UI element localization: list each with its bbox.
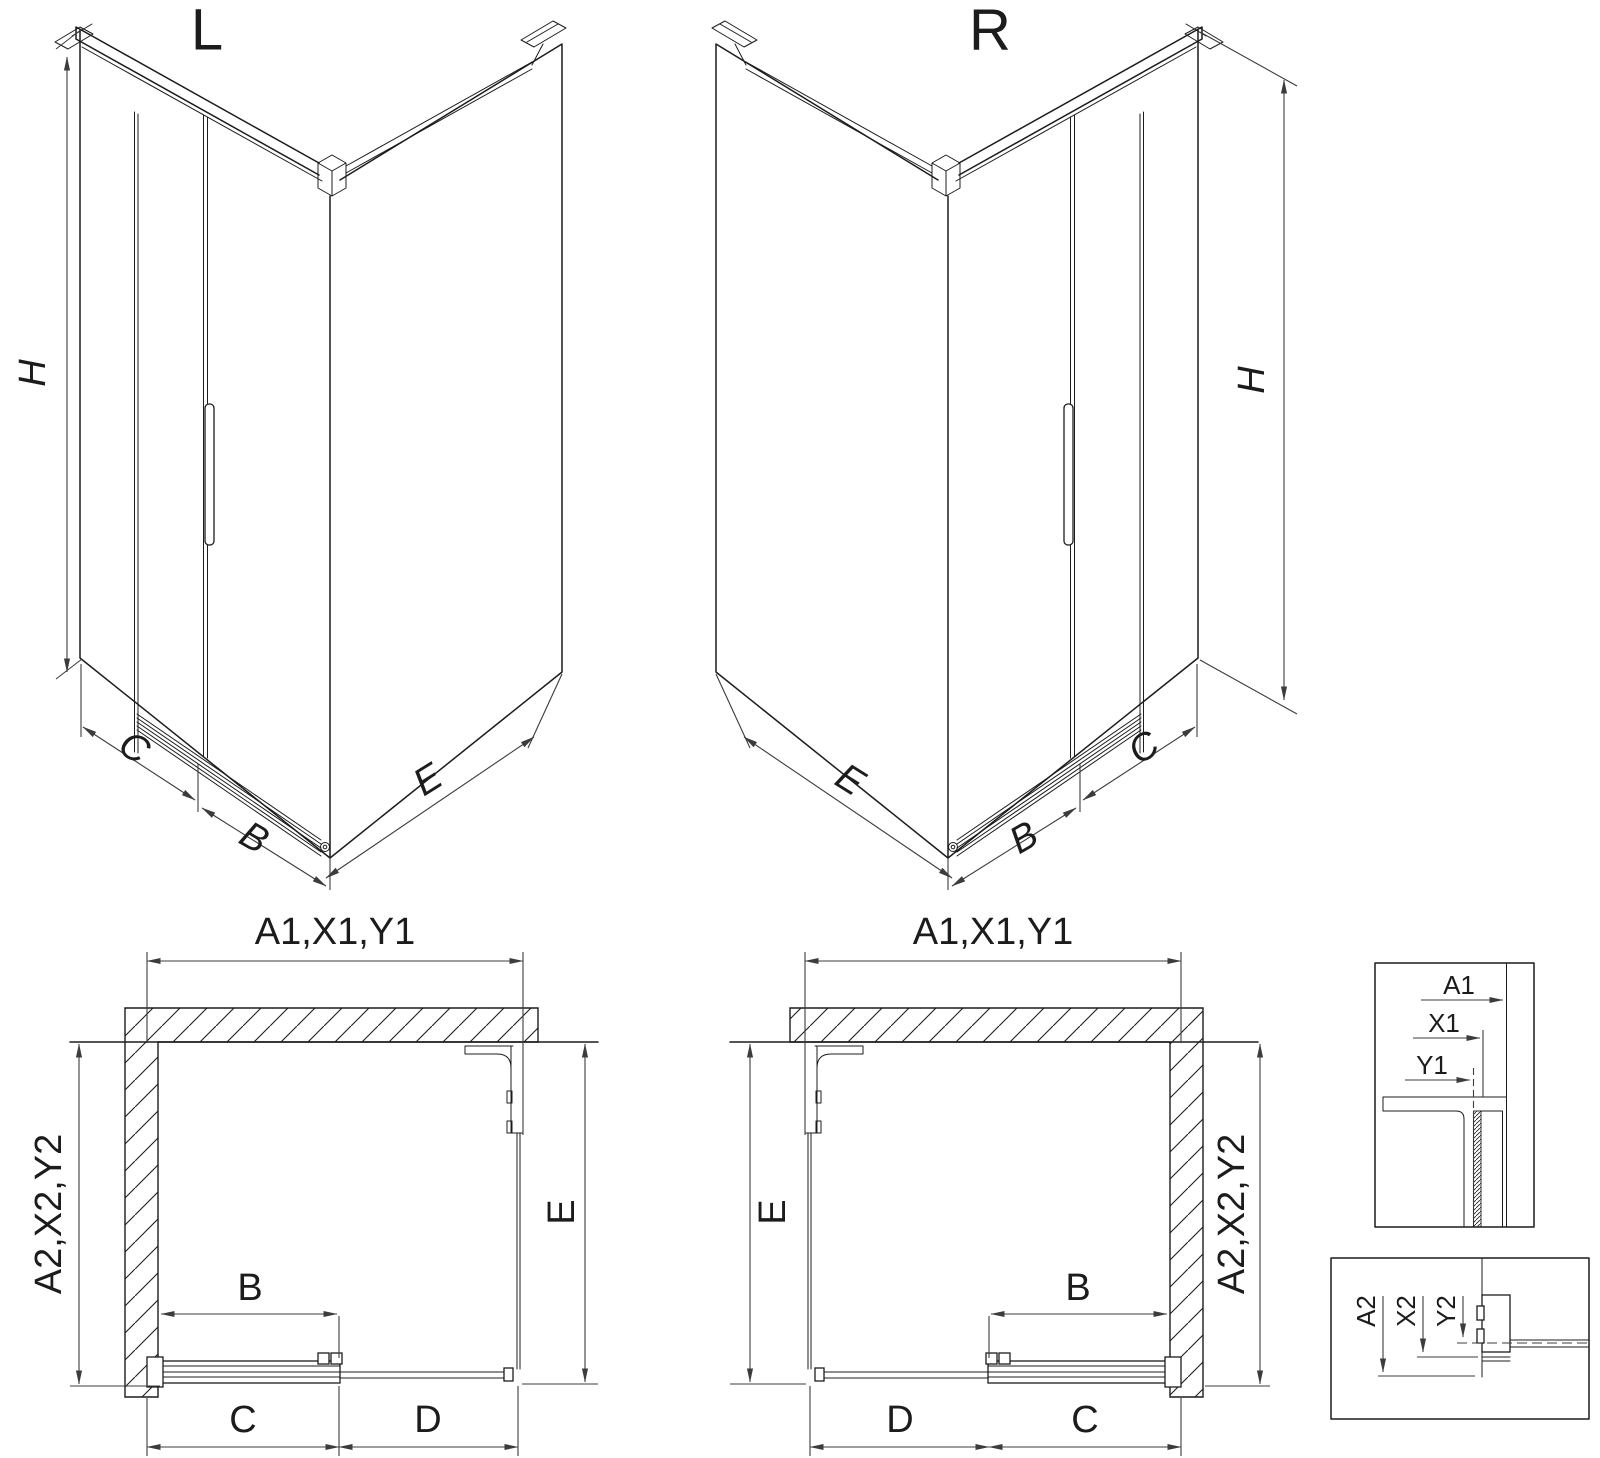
return-glass-line	[517, 1133, 520, 1369]
dimension-e: E	[326, 674, 562, 878]
support-bar	[735, 44, 932, 173]
plan-view-l: A1,X1,Y1 A2,X2,Y2 E B C D	[28, 911, 598, 1456]
view-title-l: L	[191, 0, 223, 63]
corner-profile	[805, 1046, 863, 1133]
dimension-return: E	[522, 1044, 598, 1384]
door-leaf	[147, 1353, 342, 1387]
dim-label-depth: A2,X2,Y2	[1211, 1134, 1253, 1295]
iso-view-r: R	[712, 0, 1297, 890]
dim-label-e: E	[406, 755, 450, 804]
dim-label-door: B	[1065, 1267, 1090, 1309]
support-bar	[346, 44, 543, 173]
door-handle	[205, 404, 214, 545]
dim-label-return: E	[541, 1199, 583, 1224]
dim-label-opening: D	[414, 1399, 441, 1441]
ref-label-y2: Y2	[1431, 1295, 1461, 1327]
shower-enclosure-technical-drawing: L	[0, 0, 1600, 1458]
corner-post	[318, 155, 346, 196]
return-glass-line	[808, 1133, 811, 1369]
wall-bracket-left-icon	[712, 21, 757, 47]
dimension-door: B	[161, 1267, 339, 1358]
dim-label-c: C	[1121, 723, 1167, 773]
detail-panel-depth: A2 X2 Y2	[1331, 1258, 1589, 1419]
dimension-fixed: C	[147, 1386, 339, 1456]
dimension-e: E	[716, 674, 952, 878]
dim-label-width: A1,X1,Y1	[913, 911, 1074, 953]
wall-hatch	[125, 1008, 538, 1397]
corner-post	[932, 155, 960, 196]
dimension-opening: D	[810, 1386, 989, 1456]
dimension-depth: A2,X2,Y2	[1205, 1044, 1270, 1386]
dim-label-fixed: C	[1071, 1399, 1098, 1441]
detail-panel-width: A1 X1 Y1	[1375, 963, 1534, 1227]
dim-label-width: A1,X1,Y1	[255, 911, 416, 953]
dimension-door: B	[989, 1267, 1167, 1358]
dim-label-h: H	[12, 359, 54, 387]
dim-label-c: C	[111, 723, 157, 773]
dim-label-depth: A2,X2,Y2	[28, 1134, 70, 1295]
dim-label-opening: D	[886, 1399, 913, 1441]
ref-x1: X1	[1413, 1008, 1480, 1038]
dim-label-h: H	[1231, 366, 1273, 394]
return-glass-panel	[330, 44, 562, 858]
ref-a1: A1	[1421, 970, 1503, 1000]
door-handle	[1064, 404, 1073, 545]
view-title-r: R	[969, 0, 1011, 63]
ref-label-x1: X1	[1428, 1008, 1460, 1038]
iso-view-l: L	[12, 0, 566, 890]
ref-label-x2: X2	[1391, 1295, 1421, 1327]
dimension-h: H	[1200, 32, 1297, 714]
return-glass-panel	[716, 44, 948, 858]
door-leaf	[986, 1353, 1181, 1387]
corner-profile	[465, 1046, 523, 1133]
detail-frame	[1331, 1258, 1589, 1419]
bottom-rail	[815, 1368, 988, 1381]
ref-label-a1: A1	[1443, 970, 1475, 1000]
bottom-rail	[340, 1368, 513, 1381]
dim-label-e: E	[828, 755, 872, 804]
dimension-fixed: C	[989, 1398, 1181, 1456]
dim-label-fixed: C	[229, 1399, 256, 1441]
dimension-return: E	[730, 1044, 806, 1384]
plan-view-r: A1,X1,Y1 A2,X2,Y2 E B D C	[730, 911, 1270, 1456]
detail-frame	[1375, 963, 1534, 1227]
ref-label-y1: Y1	[1416, 1050, 1448, 1080]
wall-profile-section	[1383, 963, 1507, 1227]
dimension-h: H	[12, 29, 82, 679]
ref-y2: Y2	[1431, 1295, 1463, 1337]
wall-hatch	[790, 1008, 1203, 1397]
ref-y1: Y1	[1405, 1050, 1470, 1080]
rail-end-section	[1477, 1258, 1588, 1377]
dimension-opening: D	[339, 1386, 518, 1456]
drawing-sheet: L	[0, 0, 1600, 1458]
wall-bracket-right-icon	[521, 21, 566, 47]
dim-label-return: E	[752, 1199, 794, 1224]
dim-label-door: B	[237, 1267, 262, 1309]
ref-label-a2: A2	[1351, 1295, 1381, 1327]
